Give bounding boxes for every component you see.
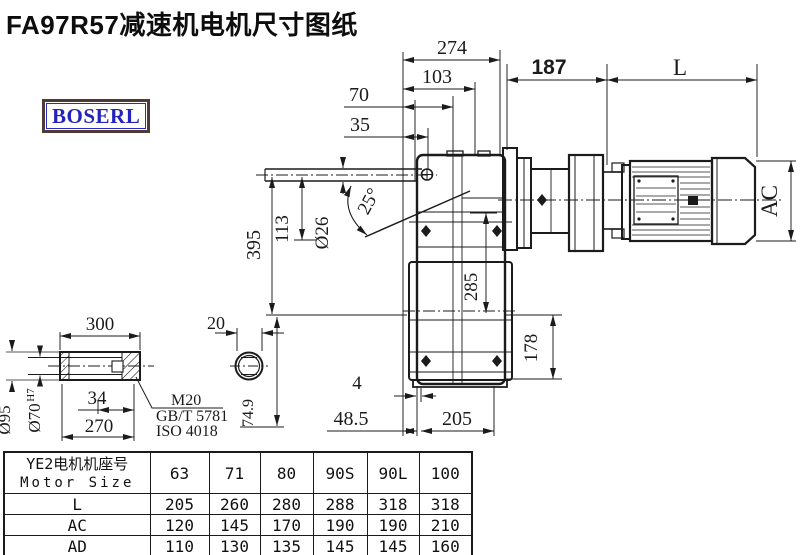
motor-size-header-en: Motor Size [5, 474, 150, 492]
cell-AD-100: 160 [419, 536, 472, 555]
cell-AD-63: 110 [150, 536, 209, 555]
dim-35-label: 35 [350, 114, 370, 136]
cell-AC-63: 120 [150, 515, 209, 536]
motor-size-header-cell: YE2电机机座号 Motor Size [4, 452, 150, 494]
column-header-63: 63 [150, 452, 209, 494]
iso-standard-label: ISO 4018 [156, 423, 218, 440]
r57-gear-unit [498, 148, 782, 251]
dim-178-label: 178 [521, 334, 542, 363]
dim-34-label: 34 [88, 388, 108, 409]
dim-95-label: Ø95 [0, 405, 14, 434]
cell-AC-80: 170 [260, 515, 313, 536]
gearbox-front-view [403, 151, 516, 387]
dim-48-5-label: 48.5 [334, 408, 369, 430]
cell-AC-90s: 190 [313, 515, 367, 536]
cell-L-71: 260 [209, 494, 260, 515]
top-dimensions [344, 50, 757, 436]
cell-L-90s: 288 [313, 494, 367, 515]
motor-side-view [622, 158, 755, 244]
dim-285-label: 285 [461, 273, 482, 302]
table-header-row: YE2电机机座号 Motor Size 63 71 80 90S 90L 100 [4, 452, 472, 494]
cell-AC-90l: 190 [367, 515, 419, 536]
cell-L-63: 205 [150, 494, 209, 515]
page: FA97R57减速机电机尺寸图纸 BOSERL [0, 0, 800, 555]
cell-L-100: 318 [419, 494, 472, 515]
row-label-AD: AD [4, 536, 150, 555]
dim-20-label: 20 [207, 313, 225, 333]
dim-395-label: 395 [243, 230, 265, 260]
cell-AD-90l: 145 [367, 536, 419, 555]
column-header-90l: 90L [367, 452, 419, 494]
dim-113-label: 113 [272, 215, 293, 243]
cell-AD-71: 130 [209, 536, 260, 555]
cell-AD-90s: 145 [313, 536, 367, 555]
table-row-AD: AD 110 130 135 145 145 160 [4, 536, 472, 555]
column-header-80: 80 [260, 452, 313, 494]
dim-300-label: 300 [86, 314, 115, 335]
row-label-L: L [4, 494, 150, 515]
motor-size-table: YE2电机机座号 Motor Size 63 71 80 90S 90L 100… [3, 451, 473, 555]
motor-cooling-fins [632, 167, 710, 235]
dim-274-label: 274 [437, 37, 467, 59]
dim-angle25-label: 25° [354, 185, 385, 218]
dim-103-label: 103 [422, 66, 452, 88]
cell-AC-71: 145 [209, 515, 260, 536]
column-header-100: 100 [419, 452, 472, 494]
motor-size-header-cn: YE2电机机座号 [5, 455, 150, 474]
row-label-AC: AC [4, 515, 150, 536]
dim-205-label: 205 [442, 408, 472, 430]
thread-spec-label: M20 [171, 392, 201, 409]
dim-70-bore-label: Ø70 [25, 403, 44, 432]
dim-AC-label: AC [757, 185, 782, 217]
dim-74-9-label: 74.9 [240, 399, 257, 427]
dim-4-label: 4 [352, 373, 362, 394]
dim-70-label: 70 [349, 84, 369, 106]
fan-cowl [712, 158, 755, 244]
cell-AD-80: 135 [260, 536, 313, 555]
cell-AC-100: 210 [419, 515, 472, 536]
cell-L-80: 280 [260, 494, 313, 515]
dim-187-label: 187 [531, 56, 566, 79]
column-header-71: 71 [209, 452, 260, 494]
cell-L-90l: 318 [367, 494, 419, 515]
dim-70-tolerance-label: H7 [25, 388, 37, 402]
column-header-90s: 90S [313, 452, 367, 494]
table-row-L: L 205 260 280 288 318 318 [4, 494, 472, 515]
dim-270-label: 270 [85, 416, 114, 437]
dim-bore26-label: Ø26 [312, 217, 333, 250]
table-row-AC: AC 120 145 170 190 190 210 [4, 515, 472, 536]
dim-L-label: L [673, 55, 687, 80]
